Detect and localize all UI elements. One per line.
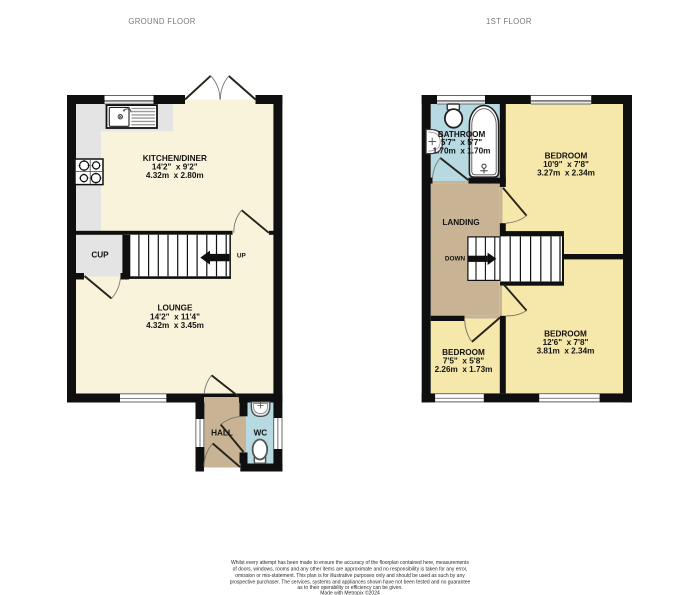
svg-text:WC: WC	[254, 429, 268, 438]
svg-text:Whilst every attempt has been: Whilst every attempt has been made to en…	[231, 560, 469, 566]
svg-text:HALL: HALL	[211, 429, 233, 438]
svg-text:omission or mis-statement. Thi: omission or mis-statement. This plan is …	[235, 573, 465, 579]
svg-text:4.32m x 3.45m: 4.32m x 3.45m	[146, 321, 204, 330]
svg-text:3.81m x 2.34m: 3.81m x 2.34m	[537, 347, 595, 356]
svg-text:1ST FLOOR: 1ST FLOOR	[486, 17, 532, 26]
svg-text:4.32m x 2.80m: 4.32m x 2.80m	[146, 171, 204, 180]
svg-text:of doors, windows, rooms and a: of doors, windows, rooms and any other i…	[233, 567, 468, 573]
svg-text:2.26m x 1.73m: 2.26m x 1.73m	[435, 365, 493, 374]
svg-text:GROUND FLOOR: GROUND FLOOR	[128, 17, 195, 26]
svg-text:CUP: CUP	[91, 251, 109, 260]
svg-text:Made with Metropix ©2024: Made with Metropix ©2024	[320, 590, 380, 595]
svg-text:DOWN: DOWN	[445, 256, 466, 263]
svg-text:3.27m x 2.34m: 3.27m x 2.34m	[537, 169, 595, 178]
svg-text:1.70m x 1.70m: 1.70m x 1.70m	[433, 147, 491, 156]
svg-text:UP: UP	[237, 253, 247, 260]
svg-text:LANDING: LANDING	[442, 218, 479, 227]
